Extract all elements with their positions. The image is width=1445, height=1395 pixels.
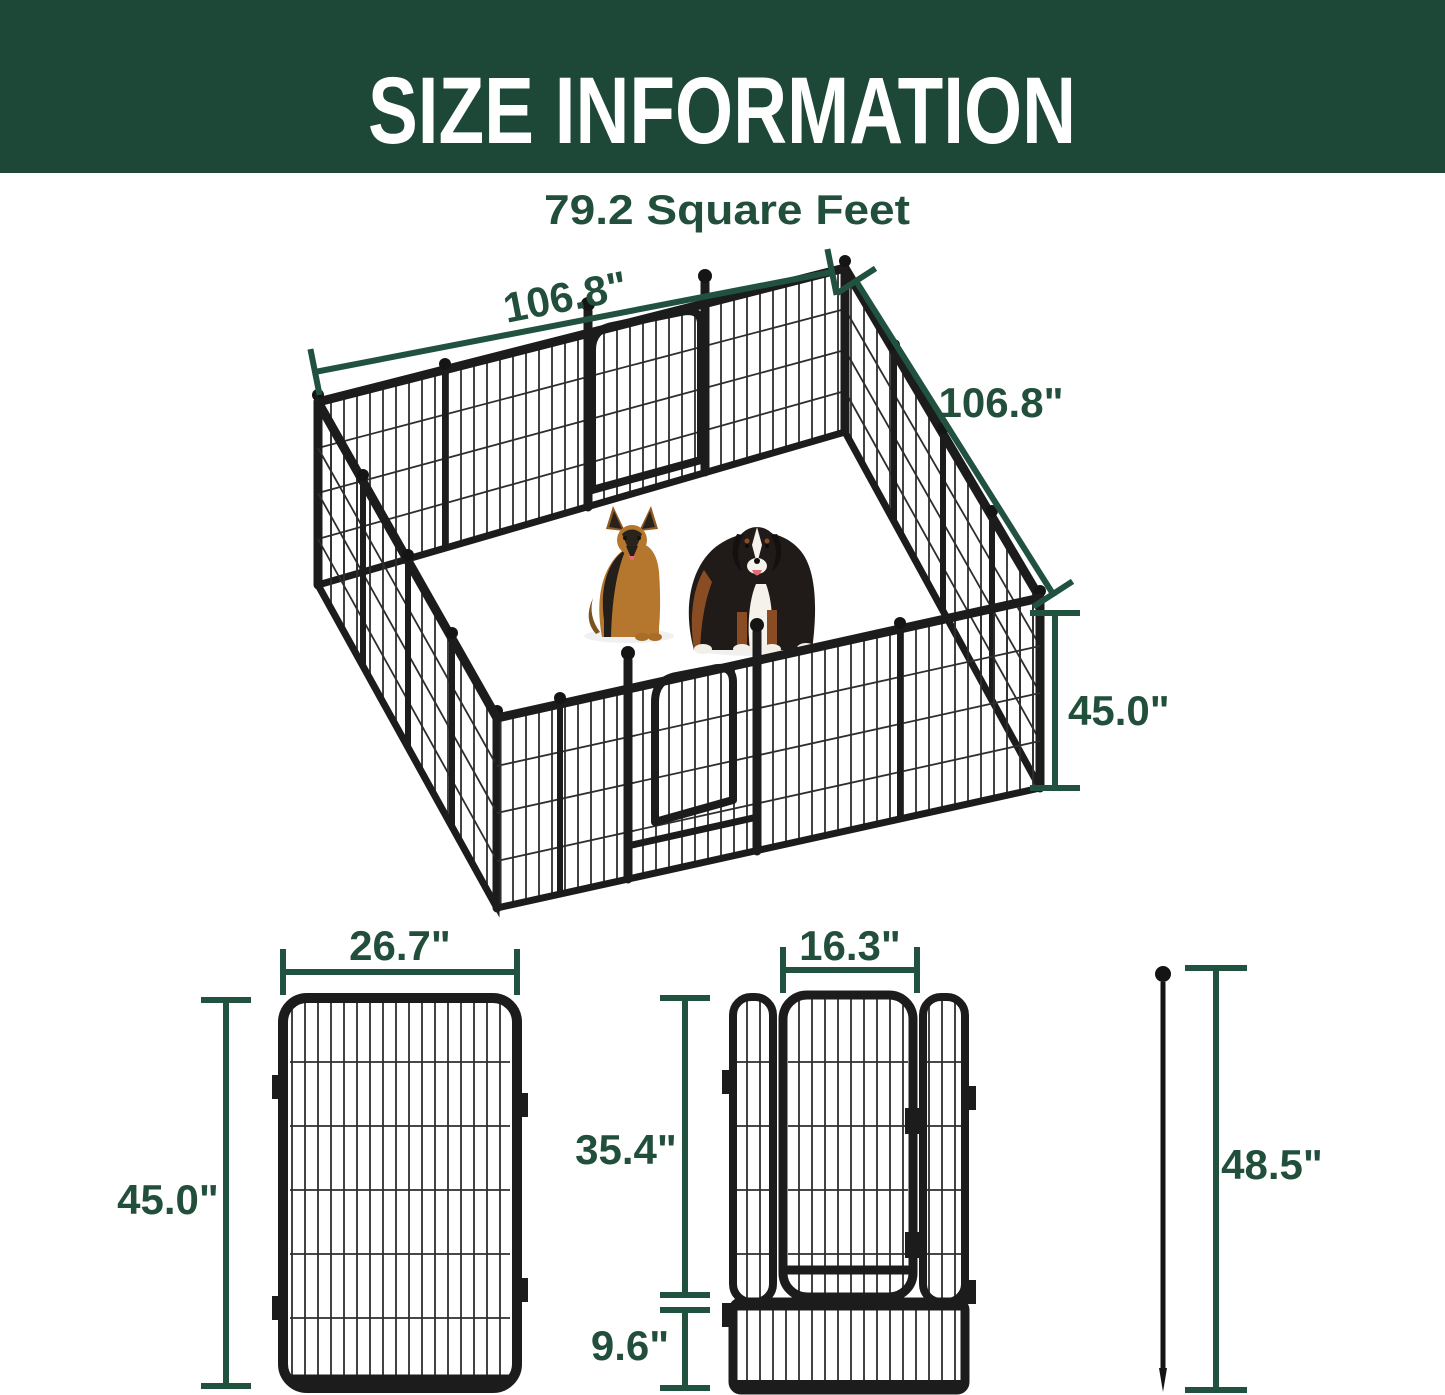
dog-front-leg — [651, 582, 659, 637]
dog-eyebrow — [745, 539, 750, 544]
stake-point — [1159, 1368, 1167, 1392]
door-upper-height-label: 35.4" — [575, 1126, 677, 1173]
stake-diagram: 48.5" — [1155, 966, 1323, 1392]
door-side-panel-right — [923, 997, 965, 1302]
stake-ball-top — [1155, 966, 1171, 982]
door-side-panel-left — [733, 997, 773, 1302]
post-ball-finial — [446, 627, 458, 639]
page-title: SIZE INFORMATION — [368, 58, 1076, 164]
dog-eyebrow — [765, 539, 770, 544]
door-lower-height-label: 9.6" — [591, 1322, 669, 1369]
post-ball-finial — [750, 618, 764, 632]
post-ball-finial — [357, 469, 369, 481]
post-ball-finial — [621, 646, 635, 660]
door-bottom-section — [733, 1302, 965, 1390]
post-ball-finial — [894, 617, 906, 629]
door-width-label: 16.3" — [799, 922, 901, 969]
dog-eye — [623, 536, 627, 540]
dog-paw — [635, 633, 649, 641]
door-hinge — [962, 1086, 976, 1110]
door-latch — [905, 1232, 925, 1258]
panel-frame — [283, 998, 517, 1388]
door-hinge — [722, 1070, 734, 1094]
post-ball-finial — [698, 269, 712, 283]
post-ball-finial — [402, 549, 414, 561]
area-label: 79.2 Square Feet — [544, 186, 910, 233]
panel-diagram: 26.7" 45.0" — [117, 922, 528, 1388]
panel-hinge — [516, 1278, 528, 1302]
dog-eye — [637, 536, 641, 540]
door-latch — [905, 1108, 925, 1134]
german-shepherd-icon — [584, 506, 674, 643]
door-hinge — [722, 1303, 734, 1327]
infographic-canvas: SIZE INFORMATION 79.2 Square Feet — [0, 0, 1445, 1395]
door-hinge — [962, 1280, 976, 1304]
post-ball-finial — [439, 358, 451, 370]
dog-eye — [745, 544, 749, 548]
door-leaf — [783, 995, 913, 1297]
header-banner: SIZE INFORMATION — [0, 0, 1445, 173]
dog-paw — [694, 644, 712, 654]
panel-height-label: 45.0" — [117, 1176, 219, 1223]
pen-height-label: 45.0" — [1068, 687, 1170, 734]
pen-illustration: 106.8" 106.8" 45.0" — [311, 252, 1170, 908]
dog-front-leg — [638, 582, 646, 637]
post-ball-finial — [554, 692, 566, 704]
panel-hinge — [272, 1296, 284, 1320]
dog-eye — [765, 544, 769, 548]
dog-paw — [733, 644, 751, 654]
size-information-infographic: SIZE INFORMATION 79.2 Square Feet — [0, 0, 1445, 1395]
panel-hinge — [516, 1093, 528, 1117]
door-panel-diagram: 16.3" 35.4" 9.6" — [575, 922, 976, 1390]
dog-tail — [589, 598, 600, 634]
panel-hinge — [272, 1075, 284, 1099]
pen-height-dimension: 45.0" — [1033, 613, 1170, 788]
door-lower-height-dimension-line — [663, 1310, 707, 1388]
pen-depth-label: 106.8" — [938, 379, 1063, 426]
stake-height-label: 48.5" — [1221, 1141, 1323, 1188]
dog-paw — [648, 633, 662, 641]
dog-nose — [754, 558, 760, 564]
panel-width-label: 26.7" — [349, 922, 451, 969]
corner-ball-finial — [839, 255, 851, 267]
